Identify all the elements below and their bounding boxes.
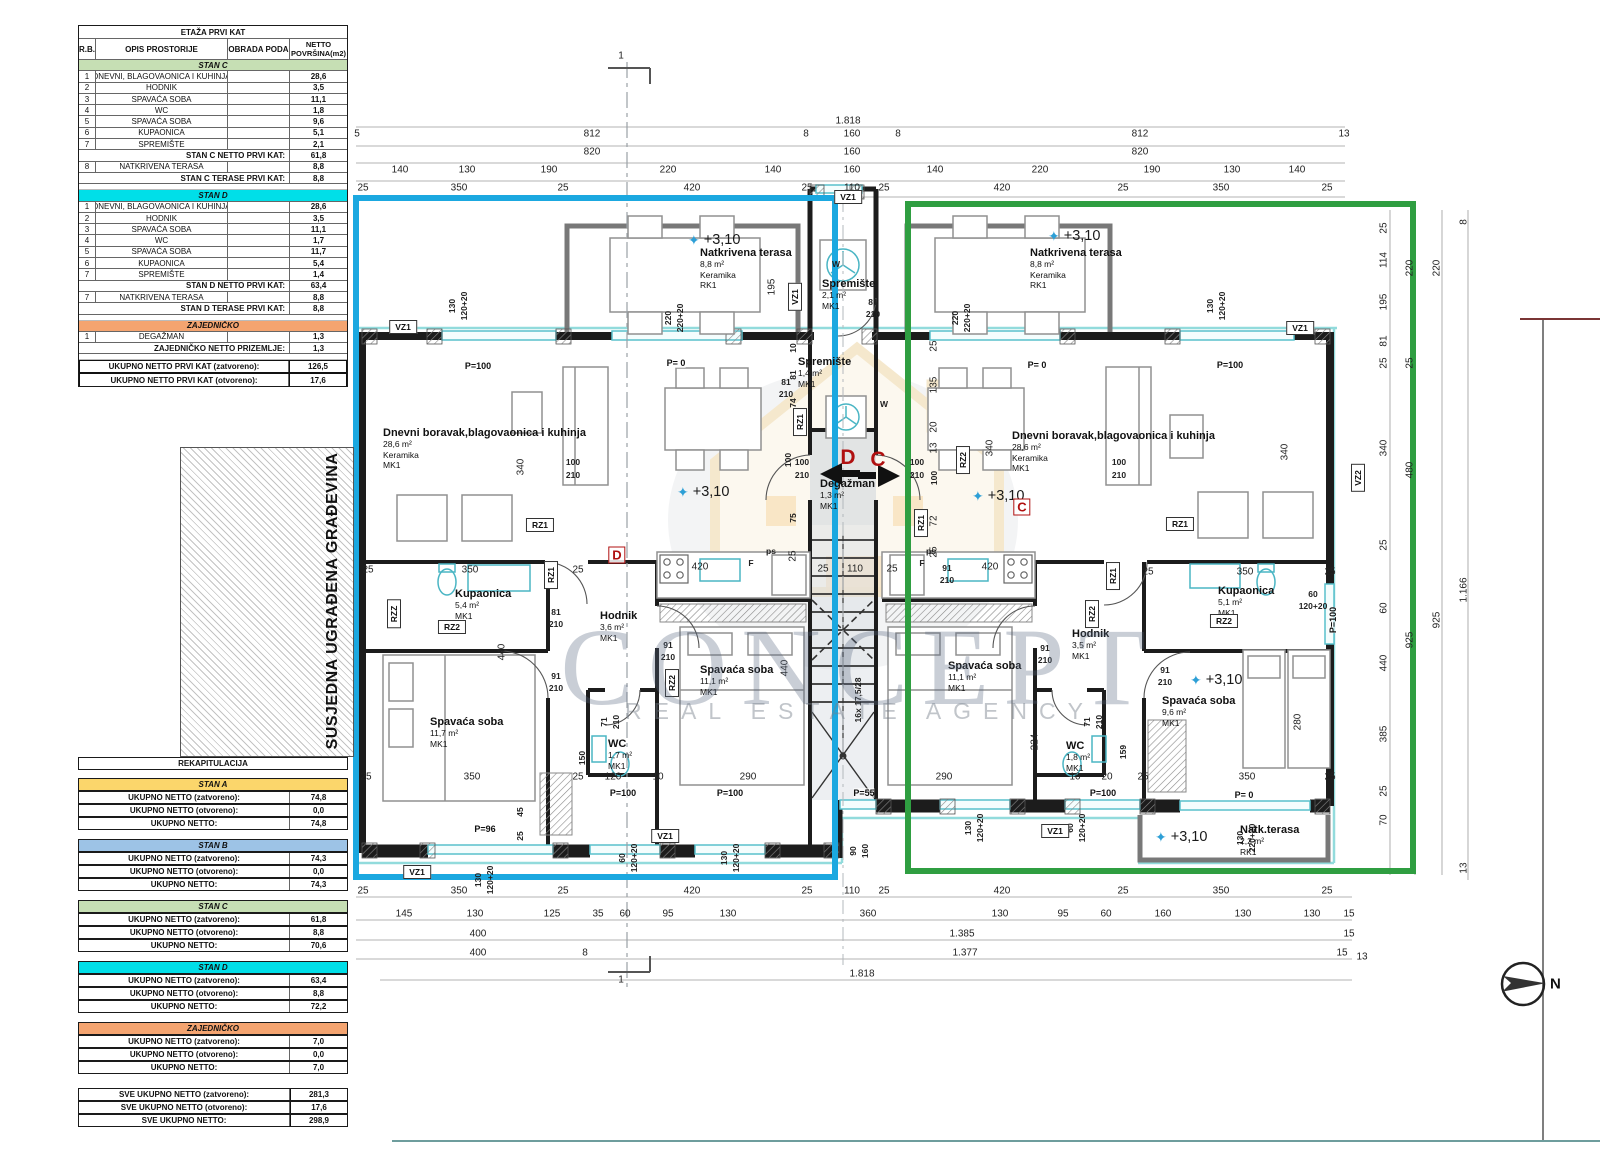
dimension-label: 159 bbox=[1118, 745, 1128, 759]
dimension-label: 120 bbox=[605, 772, 622, 783]
dimension-label: 45 bbox=[515, 807, 525, 816]
dimension-label: 220 bbox=[1032, 165, 1049, 176]
element-tag-rz1: RZ1 bbox=[544, 561, 558, 589]
dimension-label: 25 bbox=[362, 565, 373, 576]
dimension-label: 25 bbox=[1321, 183, 1332, 194]
dimension-label: 25 bbox=[1137, 772, 1148, 783]
dimension-label: 81 bbox=[1379, 335, 1390, 346]
dimension-label: W bbox=[880, 399, 888, 409]
dimension-label: 130 bbox=[1304, 909, 1321, 920]
dimension-label: 420 bbox=[994, 183, 1011, 194]
dimension-label: 25 bbox=[788, 550, 799, 561]
parapet-label: P=100 bbox=[1217, 360, 1243, 370]
room-name: Natkrivena terasa bbox=[1030, 247, 1122, 259]
dimension-label: 925 bbox=[1432, 612, 1443, 629]
room-info-line: MK1 bbox=[798, 379, 851, 390]
dimension-label: 25 bbox=[801, 183, 812, 194]
room-info-line: Keramika bbox=[1030, 270, 1122, 281]
dimension-label: 280 bbox=[1293, 714, 1304, 731]
dimension-label: 25 bbox=[572, 772, 583, 783]
room-info-line: MK1 bbox=[820, 501, 875, 512]
dimension-label: 130 bbox=[720, 909, 737, 920]
dimension-label: 100 bbox=[910, 457, 924, 467]
dimension-label: 5 bbox=[354, 129, 360, 140]
dimension-label: W bbox=[832, 259, 840, 269]
dimension-label: 25 bbox=[1324, 567, 1335, 578]
dimension-label: 120+20 bbox=[731, 844, 741, 873]
dimension-label: 13 bbox=[1356, 952, 1367, 963]
dimension-label: 70 bbox=[1379, 814, 1390, 825]
dimension-label: 812 bbox=[584, 129, 601, 140]
element-tag-vz1: VZ1 bbox=[788, 283, 802, 311]
dimension-label: 420 bbox=[982, 562, 999, 573]
dimension-label: 25 bbox=[1379, 785, 1390, 796]
dimension-label: 220 bbox=[663, 311, 673, 325]
unit-letter-d: D bbox=[840, 446, 855, 470]
room-label: Dnevni boravak,blagovaonica i kuhinja28,… bbox=[383, 427, 586, 471]
elevation-marker-icon: ✦ bbox=[1048, 229, 1060, 243]
dimension-label: 25 bbox=[515, 831, 525, 840]
dimension-label: 95 bbox=[662, 909, 673, 920]
north-label: N bbox=[1550, 976, 1561, 993]
dimension-label: 210 bbox=[779, 389, 793, 399]
room-name: Dnevni boravak,blagovaonica i kuhinja bbox=[383, 427, 586, 439]
room-label: Natkrivena terasa8,8 m²KeramikaRK1 bbox=[1030, 247, 1122, 291]
dimension-label: 140 bbox=[1289, 165, 1306, 176]
parapet-label: P=100 bbox=[717, 788, 743, 798]
room-label: Dnevni boravak,blagovaonica i kuhinja28,… bbox=[1012, 430, 1215, 474]
room-info-line: RK1 bbox=[1240, 847, 1299, 858]
parapet-label: P=100 bbox=[1090, 788, 1116, 798]
room-info-line: Keramika bbox=[383, 450, 586, 461]
element-tag-vz1: VZ1 bbox=[403, 865, 431, 879]
dimension-label: ps bbox=[926, 546, 936, 556]
room-name: Natkrivena terasa bbox=[700, 247, 792, 259]
room-info-line: MK1 bbox=[948, 683, 1021, 694]
dimension-label: 100 bbox=[783, 453, 793, 467]
dimension-label: 140 bbox=[765, 165, 782, 176]
element-tag-rz1: RZ1 bbox=[1106, 562, 1120, 590]
room-info-line: 1,3 m² bbox=[820, 490, 875, 501]
dimension-label: 360 bbox=[860, 909, 877, 920]
dimension-label: 350 bbox=[451, 886, 468, 897]
dimension-label: 25 bbox=[1142, 567, 1153, 578]
dimension-label: 25 bbox=[557, 886, 568, 897]
room-label: Kupaonica5,4 m²MK1 bbox=[455, 588, 511, 621]
dimension-label: 60 bbox=[617, 853, 627, 862]
dimension-label: 130 bbox=[459, 165, 476, 176]
room-name: Kupaonica bbox=[455, 588, 511, 600]
element-tag-rz2: RZ2 bbox=[1085, 600, 1099, 628]
elevation-marker-icon: ✦ bbox=[688, 233, 700, 247]
dimension-label: 95 bbox=[1057, 909, 1068, 920]
dimension-label: 25 bbox=[572, 565, 583, 576]
room-label: Spavaća soba11,7 m²MK1 bbox=[430, 716, 503, 749]
room-info-line: MK1 bbox=[600, 633, 637, 644]
dimension-label: 440 bbox=[497, 644, 508, 661]
dimension-label: 160 bbox=[860, 844, 870, 858]
room-label: Spavaća soba11,1 m²MK1 bbox=[700, 664, 773, 697]
room-name: Hodnik bbox=[1072, 628, 1109, 640]
dimension-label: 440 bbox=[780, 660, 791, 677]
room-info-line: MK1 bbox=[700, 687, 773, 698]
room-name: Spremište bbox=[798, 356, 851, 368]
room-info-line: MK1 bbox=[822, 301, 875, 312]
room-label: Spremište2,1 m²MK1 bbox=[822, 278, 875, 311]
room-info-line: 8,8 m² bbox=[1030, 259, 1122, 270]
room-info-line: MK1 bbox=[1012, 463, 1215, 474]
dimension-label: 25 bbox=[1379, 357, 1390, 368]
room-info-line: 3,5 m² bbox=[1072, 640, 1109, 651]
room-info-line: 1,8 m² bbox=[1066, 752, 1090, 763]
room-info-line: 5,4 m² bbox=[455, 600, 511, 611]
dimension-label: 60 bbox=[619, 909, 630, 920]
dimension-label: 25 bbox=[878, 886, 889, 897]
dimension-label: 15 bbox=[1343, 929, 1354, 940]
dimension-label: 120+20 bbox=[629, 844, 639, 873]
dimension-label: 25 bbox=[360, 772, 371, 783]
room-info-line: 2,2 m² bbox=[1240, 836, 1299, 847]
dimension-label: 120+20 bbox=[975, 814, 985, 843]
dimension-label: 75 bbox=[788, 513, 798, 522]
dimension-label: 350 bbox=[451, 183, 468, 194]
elevation-marker: ✦+3,10 bbox=[688, 232, 740, 248]
room-name: Spavaća soba bbox=[430, 716, 503, 728]
room-label: Natkrivena terasa8,8 m²KeramikaRK1 bbox=[700, 247, 792, 291]
dimension-label: 74 bbox=[788, 398, 798, 407]
dimension-label: 110 bbox=[847, 564, 863, 575]
dimension-label: 160 bbox=[844, 129, 861, 140]
dimension-label: 110 bbox=[844, 886, 860, 897]
dimension-label: 160 bbox=[844, 147, 861, 158]
dimension-label: 25 bbox=[1379, 539, 1390, 550]
room-info-line: MK1 bbox=[1072, 651, 1109, 662]
element-tag-rz1: RZ1 bbox=[793, 408, 807, 436]
dimension-label: 120+20 bbox=[459, 292, 469, 321]
dimension-label: 145 bbox=[396, 909, 413, 920]
dimension-label: 15 bbox=[1343, 909, 1354, 920]
dimension-label: 120+20 bbox=[485, 866, 495, 895]
dimension-label: 130 bbox=[1224, 165, 1241, 176]
room-info-line: 9,6 m² bbox=[1162, 707, 1235, 718]
dimension-label: 925 bbox=[1405, 632, 1416, 649]
room-info-line: 8,8 m² bbox=[700, 259, 792, 270]
elevation-marker: ✦+3,10 bbox=[677, 484, 729, 500]
room-info-line: 11,7 m² bbox=[430, 728, 503, 739]
dimension-label: 25 bbox=[1379, 222, 1390, 233]
dimension-label: 25 bbox=[1117, 886, 1128, 897]
element-tag-rz2: RZ2 bbox=[1210, 614, 1238, 628]
dimension-label: 1.385 bbox=[949, 929, 974, 940]
parapet-label: P= 0 bbox=[1235, 790, 1254, 800]
room-name: Kupaonica bbox=[1218, 585, 1274, 597]
dimension-label: 72 bbox=[929, 515, 940, 526]
parapet-label: P=55 bbox=[853, 788, 874, 798]
elevation-value: +3,10 bbox=[1171, 829, 1208, 845]
elevation-marker-icon: ✦ bbox=[677, 485, 689, 499]
element-tag-vz1: VZ1 bbox=[651, 829, 679, 843]
dimension-label: 71 bbox=[1082, 717, 1092, 726]
room-info-line: MK1 bbox=[383, 460, 586, 471]
dimension-label: 25 bbox=[357, 886, 368, 897]
room-name: Spavaća soba bbox=[700, 664, 773, 676]
dimension-label: 1 bbox=[618, 51, 624, 62]
element-tag-vz2: VZ2 bbox=[1351, 464, 1365, 492]
dimension-label: 812 bbox=[1132, 129, 1149, 140]
elevation-value: +3,10 bbox=[1206, 672, 1243, 688]
dimension-label: 25 bbox=[1324, 772, 1335, 783]
parapet-label: P=100 bbox=[1328, 607, 1338, 633]
elevation-marker-icon: ✦ bbox=[972, 489, 984, 503]
room-info-line: 5,1 m² bbox=[1218, 597, 1274, 608]
dimension-label: 820 bbox=[584, 147, 601, 158]
dimension-label: 15 bbox=[1336, 948, 1347, 959]
dimension-label: 13 bbox=[929, 442, 940, 453]
dimension-label: F bbox=[748, 558, 753, 568]
element-tag-rz1: RZ1 bbox=[914, 509, 928, 537]
elevation-value: +3,10 bbox=[693, 484, 730, 500]
dimension-label: 210 bbox=[661, 652, 675, 662]
room-name: WC bbox=[1066, 740, 1090, 752]
dimension-label: 100 bbox=[929, 471, 939, 485]
dimension-label: 91 bbox=[1040, 643, 1049, 653]
element-tag-vz1: VZ1 bbox=[1041, 824, 1069, 838]
dimension-label: 130 bbox=[963, 821, 973, 835]
dimension-label: 1.818 bbox=[849, 969, 874, 980]
room-label: Hodnik3,6 m²MK1 bbox=[600, 610, 637, 643]
dimension-label: 210 bbox=[1094, 715, 1104, 729]
dimension-label: 480 bbox=[1405, 462, 1416, 479]
room-label: Natk.terasa2,2 m²RK1 bbox=[1240, 824, 1299, 857]
dimension-label: 140 bbox=[392, 165, 409, 176]
room-label: Spavaća soba9,6 m²MK1 bbox=[1162, 695, 1235, 728]
dimension-label: 130 bbox=[467, 909, 484, 920]
dimension-label: 71 bbox=[599, 717, 609, 726]
dimension-label: 25 bbox=[878, 183, 889, 194]
dimension-label: 400 bbox=[470, 948, 487, 959]
room-name: Spavaća soba bbox=[948, 660, 1021, 672]
room-name: Spavaća soba bbox=[1162, 695, 1235, 707]
room-label: Degažman1,3 m²MK1 bbox=[820, 478, 875, 511]
dimension-label: 120+20 bbox=[1217, 292, 1227, 321]
room-name: Degažman bbox=[820, 478, 875, 490]
dimension-label: 220 bbox=[1432, 260, 1443, 277]
room-info-line: 2,1 m² bbox=[822, 290, 875, 301]
dimension-label: 60 bbox=[1379, 602, 1390, 613]
dimension-label: 340 bbox=[1280, 444, 1291, 461]
room-info-line: 1,4 m² bbox=[798, 368, 851, 379]
element-tag-vz1: VZ1 bbox=[389, 320, 417, 334]
room-label: WC1,8 m²MK1 bbox=[1066, 740, 1090, 773]
element-tag-vz1: VZ1 bbox=[1286, 321, 1314, 335]
dimension-label: 340 bbox=[1379, 440, 1390, 457]
parapet-label: P=100 bbox=[610, 788, 636, 798]
dimension-label: 90 bbox=[848, 846, 858, 855]
room-info-line: RK1 bbox=[700, 280, 792, 291]
dimension-label: 81 bbox=[781, 377, 790, 387]
room-info-line: 11,1 m² bbox=[948, 672, 1021, 683]
dimension-label: 8 bbox=[582, 948, 588, 959]
elevation-marker-icon: ✦ bbox=[1190, 673, 1202, 687]
dimension-label: 20 bbox=[1101, 772, 1112, 783]
room-name: Dnevni boravak,blagovaonica i kuhinja bbox=[1012, 430, 1215, 442]
room-name: Spremište bbox=[822, 278, 875, 290]
room-info-line: Keramika bbox=[1012, 453, 1215, 464]
dimension-label: 420 bbox=[692, 562, 709, 573]
unit-letter-c: C bbox=[1013, 499, 1030, 516]
dimension-label: 25 bbox=[357, 183, 368, 194]
dimension-label: 91 bbox=[663, 640, 672, 650]
room-info-line: 11,1 m² bbox=[700, 676, 773, 687]
dimension-label: 160 bbox=[1155, 909, 1172, 920]
dimension-label: 8 bbox=[895, 129, 901, 140]
unit-letter-c: C bbox=[870, 448, 885, 472]
dimension-label: 100 bbox=[795, 457, 809, 467]
elevation-value: +3,10 bbox=[1064, 228, 1101, 244]
room-label: WC1,7 m²MK1 bbox=[608, 738, 632, 771]
dimension-label: 130 bbox=[473, 873, 483, 887]
parapet-label: P= 0 bbox=[1028, 360, 1047, 370]
dimension-label: F bbox=[919, 558, 924, 568]
dimension-label: 350 bbox=[464, 772, 481, 783]
dimension-label: 290 bbox=[936, 772, 953, 783]
room-name: Natk.terasa bbox=[1240, 824, 1299, 836]
dimension-label: 820 bbox=[1132, 147, 1149, 158]
dimension-label: 190 bbox=[541, 165, 558, 176]
dimension-label: 210 bbox=[1158, 677, 1172, 687]
dimension-label: 210 bbox=[549, 619, 563, 629]
elevation-marker: ✦+3,10 bbox=[1048, 228, 1100, 244]
dimension-label: 120+20 bbox=[1077, 814, 1087, 843]
dimension-label: 35 bbox=[592, 909, 603, 920]
dimension-label: 350 bbox=[462, 565, 479, 576]
room-name: Hodnik bbox=[600, 610, 637, 622]
room-info-line: MK1 bbox=[430, 739, 503, 750]
room-info-line: 28,6 m² bbox=[383, 439, 586, 450]
dimension-label: 220+20 bbox=[962, 304, 972, 333]
dimension-label: 350 bbox=[1213, 183, 1230, 194]
dimension-label: 120+20 bbox=[1299, 601, 1328, 611]
dimension-label: ps bbox=[766, 546, 776, 556]
dimension-label: 420 bbox=[994, 886, 1011, 897]
element-tag-vz1: VZ1 bbox=[834, 190, 862, 204]
dimension-label: 130 bbox=[1235, 909, 1252, 920]
element-tag-rz1: RZ1 bbox=[526, 518, 554, 532]
dimension-label: 150 bbox=[577, 751, 587, 765]
dimension-label: 91 bbox=[551, 671, 560, 681]
room-label: Spremište1,4 m²MK1 bbox=[798, 356, 851, 389]
elevation-value: +3,10 bbox=[704, 232, 741, 248]
floorplan-sheet: SUSJEDNA UGRAĐENA GRAĐEVINA ETAŽA PRVI K… bbox=[0, 0, 1600, 1159]
dimension-label: 13 bbox=[1338, 129, 1349, 140]
dimension-label: 160 bbox=[844, 165, 861, 176]
elevation-marker: ✦+3,10 bbox=[1190, 672, 1242, 688]
dimension-label: 25 bbox=[886, 564, 897, 575]
dimension-label: 210 bbox=[566, 470, 580, 480]
room-info-line: 28,6 m² bbox=[1012, 442, 1215, 453]
room-info-line: RK1 bbox=[1030, 280, 1122, 291]
dimension-label: 25 bbox=[801, 886, 812, 897]
dimension-label: 290 bbox=[740, 772, 757, 783]
dimension-label: 440 bbox=[1379, 655, 1390, 672]
dimension-label: 10 bbox=[788, 343, 798, 352]
dimension-label: 210 bbox=[1038, 655, 1052, 665]
dimension-label: 350 bbox=[1239, 772, 1256, 783]
room-info-line: Keramika bbox=[700, 270, 792, 281]
dimension-label: 210 bbox=[549, 683, 563, 693]
elevation-marker-icon: ✦ bbox=[1155, 830, 1167, 844]
parapet-label: P=100 bbox=[465, 361, 491, 371]
dimension-label: 420 bbox=[684, 886, 701, 897]
dimension-label: 91 bbox=[942, 563, 951, 573]
dimension-label: 385 bbox=[1379, 726, 1390, 743]
parapet-label: P= 0 bbox=[667, 358, 686, 368]
dimension-label: 130 bbox=[992, 909, 1009, 920]
dimension-label: 130 bbox=[447, 299, 457, 313]
dimension-label: 60 bbox=[1100, 909, 1111, 920]
dimension-label: 220 bbox=[660, 165, 677, 176]
dimension-label: 220+20 bbox=[675, 304, 685, 333]
dimension-label: 25 bbox=[817, 564, 828, 575]
dimension-label: 25 bbox=[1117, 183, 1128, 194]
dimension-label: 10 bbox=[1069, 772, 1080, 783]
element-tag-rz2: RZ2 bbox=[665, 669, 679, 697]
dimension-label: 210 bbox=[910, 470, 924, 480]
dimension-label: 16x 17,5/28 bbox=[853, 678, 863, 723]
dimension-label: 140 bbox=[927, 165, 944, 176]
dimension-label: 25 bbox=[557, 183, 568, 194]
dimension-label: 1.377 bbox=[952, 948, 977, 959]
room-label: Spavaća soba11,1 m²MK1 bbox=[948, 660, 1021, 693]
dimension-label: 400 bbox=[470, 929, 487, 940]
dimension-label: 20 bbox=[929, 421, 940, 432]
room-info-line: MK1 bbox=[1066, 763, 1090, 774]
dimension-label: 81 bbox=[551, 607, 560, 617]
room-info-line: MK1 bbox=[608, 761, 632, 772]
element-tag-rz2: RZ2 bbox=[956, 446, 970, 474]
dimension-label: 210 bbox=[940, 575, 954, 585]
dimension-label: 10 bbox=[652, 772, 663, 783]
room-name: WC bbox=[608, 738, 632, 750]
dimension-label: 135 bbox=[929, 377, 940, 394]
parapet-label: P=96 bbox=[474, 824, 495, 834]
element-tag-rz2: RZ2 bbox=[438, 620, 466, 634]
dimension-label: 350 bbox=[1213, 886, 1230, 897]
dimension-label: 25 bbox=[1321, 886, 1332, 897]
room-info-line: 1,7 m² bbox=[608, 750, 632, 761]
dimension-label: 60 bbox=[1308, 589, 1317, 599]
dimension-label: 190 bbox=[1144, 165, 1161, 176]
dimension-label: 350 bbox=[1237, 567, 1254, 578]
plan-label-layer: 1.81858128160881213820160820140130190220… bbox=[0, 0, 1600, 1159]
element-tag-rzz: RZZ bbox=[387, 600, 401, 629]
dimension-label: 420 bbox=[684, 183, 701, 194]
dimension-label: 130 bbox=[1205, 299, 1215, 313]
dimension-label: 210 bbox=[611, 715, 621, 729]
element-tag-rz1: RZ1 bbox=[1166, 517, 1194, 531]
dimension-label: 224 bbox=[1030, 734, 1041, 751]
dimension-label: 8 bbox=[1459, 219, 1470, 225]
dimension-label: 1.818 bbox=[835, 116, 860, 127]
room-info-line: MK1 bbox=[1162, 718, 1235, 729]
elevation-marker: ✦+3,10 bbox=[1155, 829, 1207, 845]
dimension-label: 340 bbox=[985, 440, 996, 457]
dimension-label: 220 bbox=[1405, 260, 1416, 277]
dimension-label: 25 bbox=[929, 340, 940, 351]
dimension-label: 114 bbox=[1379, 252, 1390, 268]
dimension-label: 210 bbox=[795, 470, 809, 480]
dimension-label: 91 bbox=[1160, 665, 1169, 675]
